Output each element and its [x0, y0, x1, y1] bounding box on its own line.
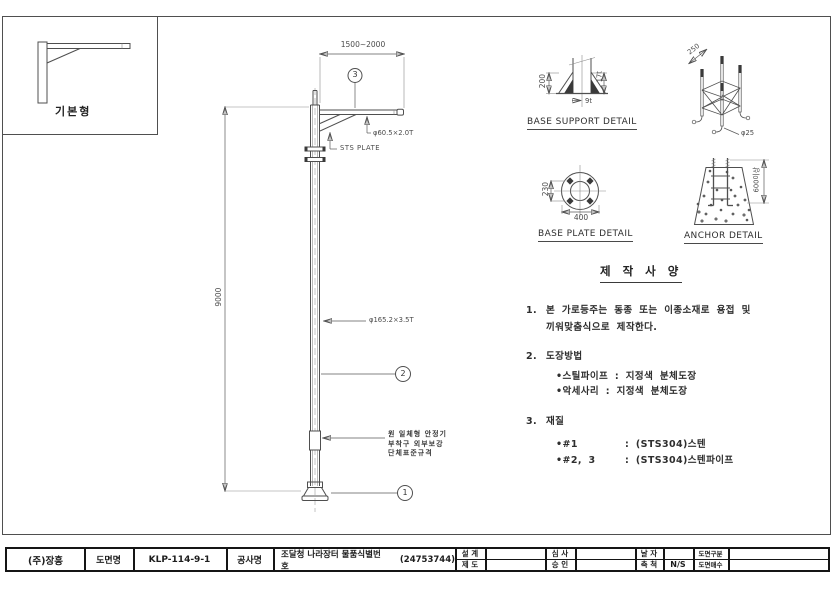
design-label: 설 계 [455, 549, 485, 559]
draft-value [485, 560, 545, 570]
reinforce-note-line3: 단체표준규격 [388, 450, 433, 458]
spec-item3-title: 재질 [546, 417, 564, 427]
company-name: (주)장흥 [7, 549, 84, 570]
spec-item3-bullet1-value: : (STS304)스텐 [625, 440, 706, 450]
scale-value: N/S [663, 560, 693, 570]
sheets-label: 도면매수 [693, 560, 728, 570]
drawing-number: KLP-114-9-1 [133, 549, 226, 570]
project-id: (24753744) [400, 555, 455, 565]
balloon-1: 1 [399, 489, 411, 498]
anchor-cage-drawing [689, 50, 750, 135]
scale-label: 축 척 [635, 560, 663, 570]
anchor-detail-title: ANCHOR DETAIL [684, 232, 763, 244]
base-plate-detail-drawing [551, 165, 606, 217]
spec-item1-line2: 끼워맞춤식으로 제작한다. [546, 323, 657, 333]
spec-item2-title: 도장방법 [546, 352, 583, 362]
basic-type-label: 기본형 [55, 106, 91, 118]
design-value [485, 549, 545, 559]
base-plate-detail-title: BASE PLATE DETAIL [538, 230, 633, 242]
anchor-bolt-dia-dim: φ25 [741, 130, 754, 137]
pole-height-dim: 9000 [215, 281, 223, 313]
project-text: 조달청 나라장터 물품식별번호 [281, 548, 386, 572]
spec-item2-bullet1: •스틸파이프 : 지정색 분체도장 [556, 372, 696, 382]
balloon-3: 3 [349, 71, 361, 80]
anchor-depth-dim: 600이상 [753, 160, 760, 200]
approve-label: 승 인 [545, 560, 575, 570]
title-block: (주)장흥 도면명 KLP-114-9-1 공사명 조달청 나라장터 물품식별번… [5, 547, 830, 572]
base-support-detail-title: BASE SUPPORT DETAIL [527, 118, 637, 130]
class-value [728, 549, 828, 559]
spec-item3-bullet2-label: •#2, 3 [556, 456, 596, 466]
base-support-plate-dim: 17t [596, 65, 603, 89]
base-support-rib-dim: 9t [585, 98, 592, 105]
class-label: 도면구분 [693, 549, 728, 559]
date-value [663, 549, 693, 559]
spec-title: 제 작 사 양 [600, 265, 682, 283]
spec-item3-bullet2-value: : (STS304)스텐파이프 [625, 456, 734, 466]
spec-item1-no: 1. [526, 306, 537, 316]
arm-spec-label: φ60.5×2.0T [373, 130, 413, 137]
balloon-2: 2 [397, 370, 409, 379]
drawing-lineart [0, 0, 835, 591]
draft-label: 제 도 [455, 560, 485, 570]
project-cell: 조달청 나라장터 물품식별번호 (24753744) [273, 549, 455, 570]
spec-item2-bullet2: •악세사리 : 지정색 분체도장 [556, 387, 687, 397]
sts-plate-label: STS PLATE [340, 145, 380, 152]
spec-item3-no: 3. [526, 417, 537, 427]
arm-length-dim: 1500~2000 [334, 41, 392, 49]
drawing-name-label: 도면명 [84, 549, 133, 570]
base-plate-outer-dim: 400 [570, 214, 592, 222]
pole-spec-label: φ165.2×3.5T [369, 317, 414, 324]
review-value [575, 549, 635, 559]
spec-item1-line1: 본 가로등주는 동종 또는 이종소재로 용접 및 [546, 306, 751, 316]
approve-value [575, 560, 635, 570]
drawing-sheet: 기본형 1500~2000 3 9000 STS PLATE φ60.5×2.0… [0, 0, 835, 591]
date-label: 날 자 [635, 549, 663, 559]
sheets-value [728, 560, 828, 570]
spec-item3-bullet1-label: •#1 [556, 440, 578, 450]
spec-item2-no: 2. [526, 352, 537, 362]
base-plate-pitch-dim: 230 [542, 174, 550, 204]
reinforce-note-line2: 부착구 외부보강 [388, 441, 444, 449]
base-support-height-dim: 200 [539, 66, 547, 96]
reinforce-note-line1: 원 일체형 안정기 [388, 431, 447, 439]
review-label: 심 사 [545, 549, 575, 559]
project-label: 공사명 [226, 549, 273, 570]
